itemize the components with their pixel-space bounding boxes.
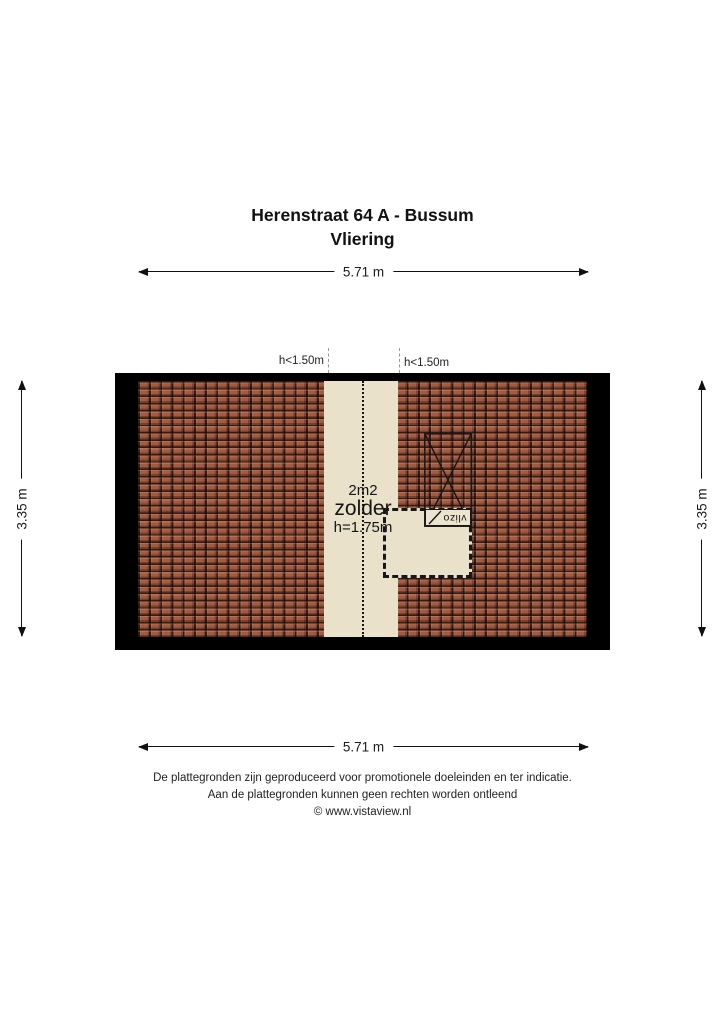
title-block: Herenstraat 64 A - Bussum Vliering [0,203,725,251]
dimension-right-label: 3.35 m [695,478,710,539]
room-label-block: 2m2 zolder h=1.75m [334,484,393,536]
arrowhead-right-icon [579,268,589,276]
room-label: zolder [334,498,393,519]
arrowhead-up-icon [698,380,706,390]
vlizo-hatch-box: vlizo [425,509,471,526]
disclaimer-line-3: © www.vistaview.nl [0,804,725,821]
dimension-right: 3.35 m [701,381,702,636]
disclaimer-line-2: Aan de plattegronden kunnen geen rechten… [0,787,725,804]
dimension-left-label: 3.35 m [15,478,30,539]
dimension-left: 3.35 m [21,381,22,636]
floorplan-page: Herenstraat 64 A - Bussum Vliering 5.71 … [0,0,725,1024]
arrowhead-left-icon [138,268,148,276]
arrowhead-left-icon [138,743,148,751]
low-headroom-label-right: h<1.50m [404,357,449,369]
disclaimer-line-1: De plattegronden zijn geproduceerd voor … [0,770,725,787]
dimension-bottom-label: 5.71 m [334,740,393,755]
height-label: h=1.75m [334,519,393,536]
roof-tiles-surface: vlizo 2m2 zolder h=1.75m [138,381,587,637]
arrowhead-down-icon [18,627,26,637]
disclaimer: De plattegronden zijn geproduceerd voor … [0,770,725,821]
page-title: Herenstraat 64 A - Bussum [0,203,725,227]
dimension-bottom: 5.71 m [139,746,588,747]
arrowhead-up-icon [18,380,26,390]
vlizo-hatch-label: vlizo [443,512,467,524]
headroom-boundary-tick-left [328,348,329,373]
page-subtitle: Vliering [0,227,725,251]
headroom-boundary-tick-right [399,348,400,373]
arrowhead-right-icon [579,743,589,751]
arrowhead-down-icon [698,627,706,637]
low-headroom-label-left: h<1.50m [240,355,324,367]
dimension-top-label: 5.71 m [334,265,393,280]
floor-plan: vlizo 2m2 zolder h=1.75m [115,373,610,650]
dimension-top: 5.71 m [139,271,588,272]
hatch-diagonal-icon [428,510,442,525]
area-label: 2m2 [334,484,393,498]
